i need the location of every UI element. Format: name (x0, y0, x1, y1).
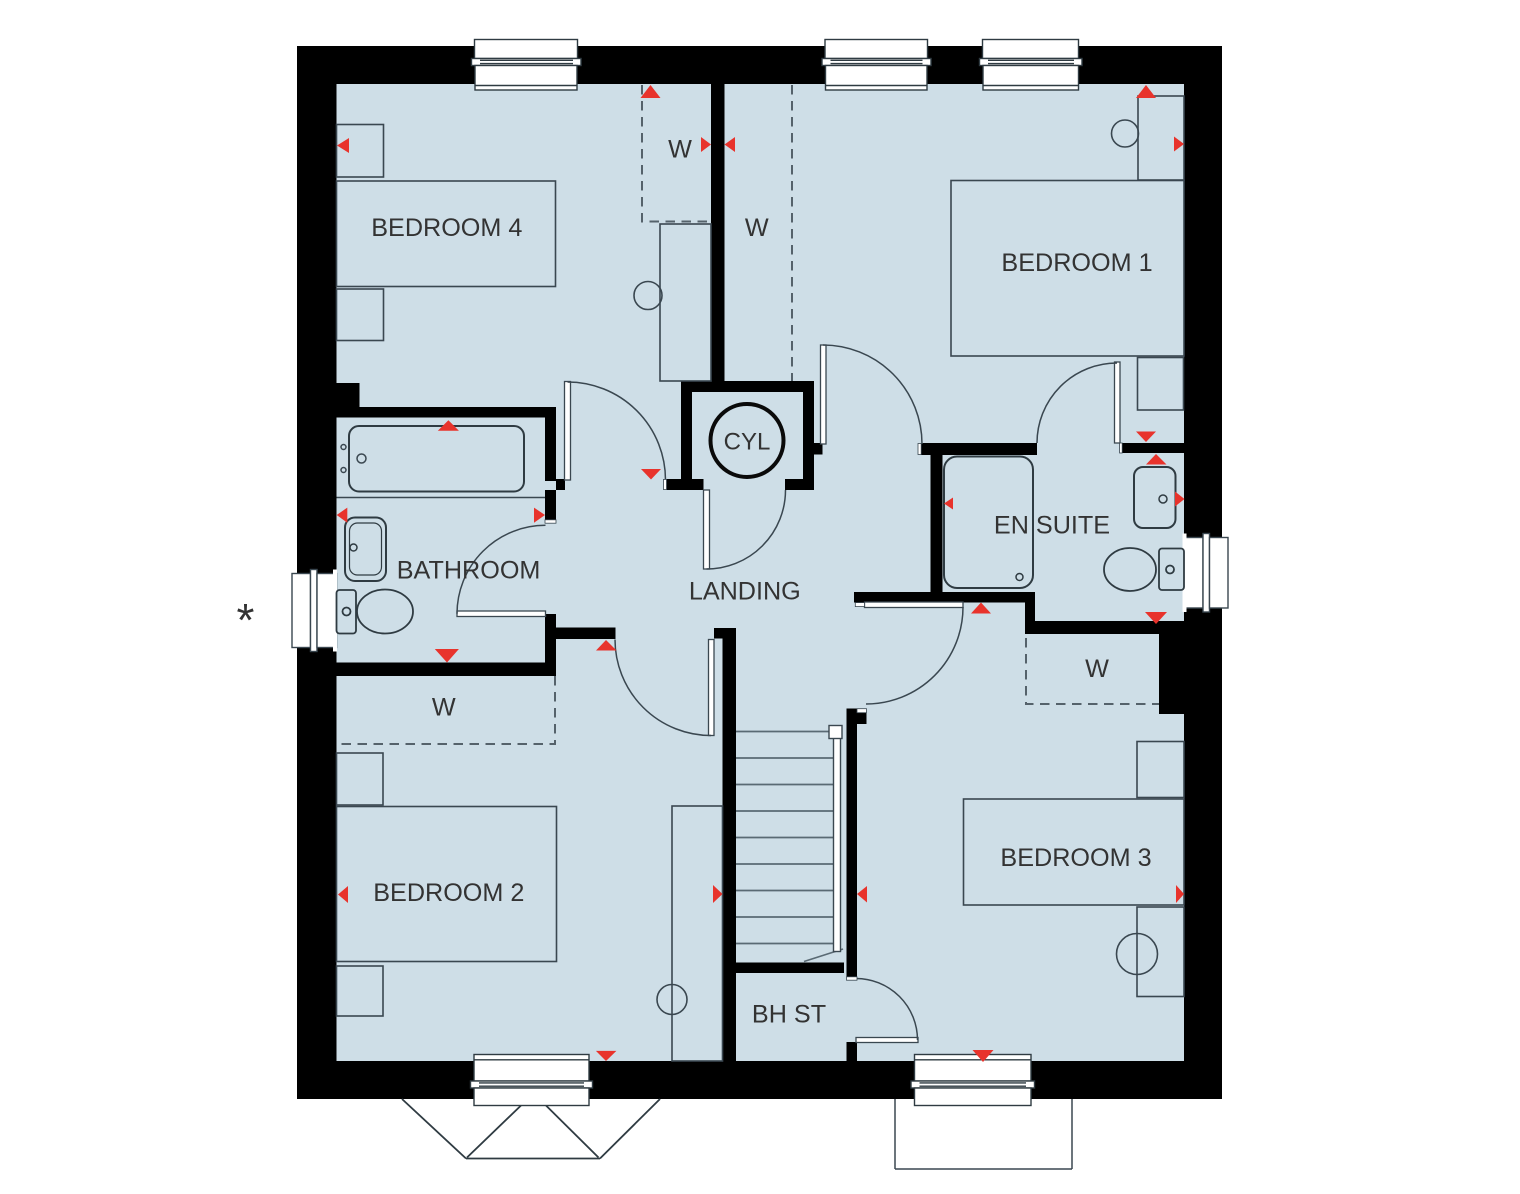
svg-text:LANDING: LANDING (689, 578, 801, 606)
svg-text:BEDROOM 4: BEDROOM 4 (371, 214, 522, 242)
svg-text:EN SUITE: EN SUITE (994, 512, 1110, 540)
svg-text:BH ST: BH ST (752, 1001, 826, 1029)
svg-text:W: W (745, 214, 769, 242)
svg-text:W: W (432, 694, 456, 722)
svg-text:BATHROOM: BATHROOM (397, 557, 541, 585)
svg-text:BEDROOM 1: BEDROOM 1 (1001, 249, 1152, 277)
svg-text:BEDROOM 3: BEDROOM 3 (1000, 844, 1151, 872)
svg-text:CYL: CYL (724, 429, 771, 456)
svg-text:W: W (668, 136, 692, 164)
svg-text:BEDROOM 2: BEDROOM 2 (373, 879, 524, 907)
svg-text:*: * (237, 594, 255, 646)
svg-text:W: W (1085, 655, 1109, 683)
